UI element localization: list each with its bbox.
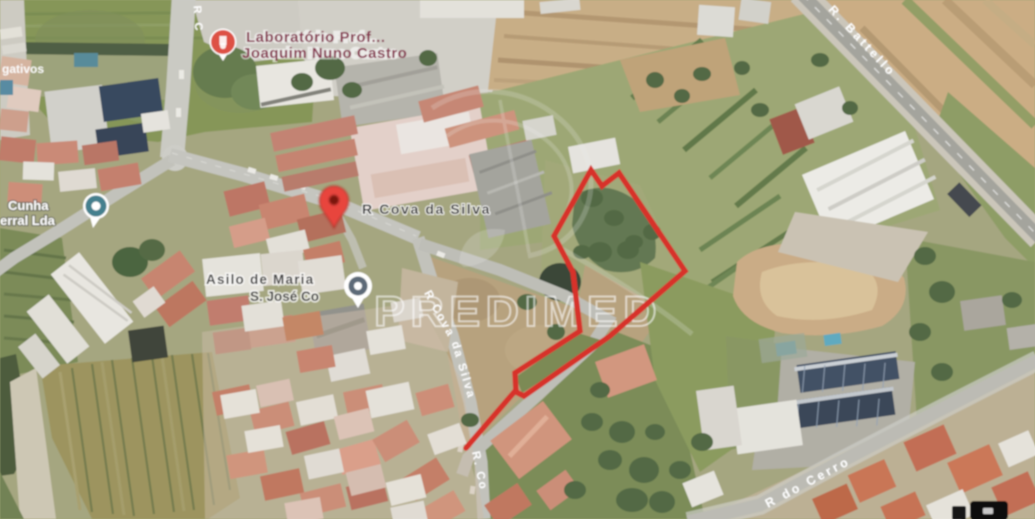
svg-text:erral Lda: erral Lda bbox=[0, 213, 56, 228]
svg-text:S. José Co: S. José Co bbox=[250, 289, 319, 304]
svg-text:Joaquim Nuno Castro: Joaquim Nuno Castro bbox=[242, 45, 407, 62]
svg-text:R Cova da Silva: R Cova da Silva bbox=[362, 201, 491, 217]
svg-text:gativos: gativos bbox=[2, 62, 44, 76]
svg-text:R C: R C bbox=[191, 5, 205, 34]
svg-text:Cunha: Cunha bbox=[8, 198, 49, 213]
svg-text:Asilo de Maria: Asilo de Maria bbox=[206, 272, 314, 287]
svg-text:Laboratório Prof...: Laboratório Prof... bbox=[246, 29, 386, 46]
